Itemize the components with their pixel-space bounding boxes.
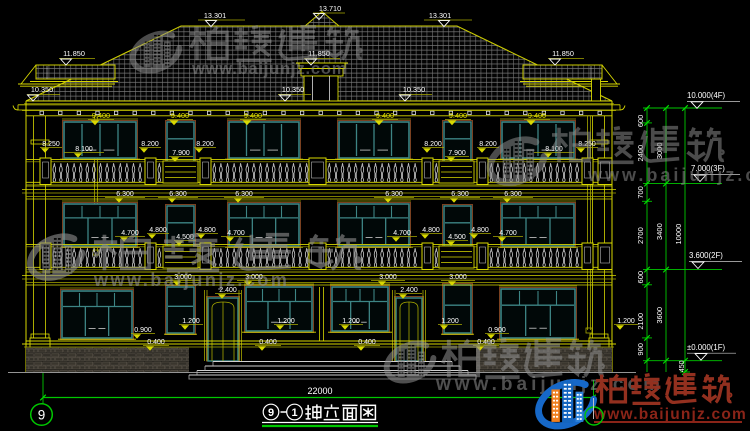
svg-text:0.400: 0.400 bbox=[259, 339, 277, 346]
svg-text:8.250: 8.250 bbox=[42, 141, 60, 148]
svg-text:9.400: 9.400 bbox=[171, 111, 189, 120]
svg-text:4.800: 4.800 bbox=[198, 227, 216, 234]
svg-text:3.000: 3.000 bbox=[379, 274, 397, 281]
svg-text:0.400: 0.400 bbox=[147, 339, 165, 346]
svg-text:6.300: 6.300 bbox=[235, 191, 253, 198]
svg-text:1.200: 1.200 bbox=[182, 318, 200, 325]
svg-text:6.300: 6.300 bbox=[116, 191, 134, 198]
svg-text:8.200: 8.200 bbox=[196, 141, 214, 148]
svg-text:3600: 3600 bbox=[655, 307, 664, 324]
svg-text:www.baijunjz.com: www.baijunjz.com bbox=[191, 60, 347, 78]
svg-text:9.400: 9.400 bbox=[528, 111, 546, 120]
svg-text:9.400: 9.400 bbox=[244, 111, 262, 120]
svg-text:1.200: 1.200 bbox=[617, 318, 635, 325]
svg-text:9.400: 9.400 bbox=[449, 111, 467, 120]
svg-text:700: 700 bbox=[636, 186, 645, 199]
svg-text:8.200: 8.200 bbox=[141, 141, 159, 148]
svg-text:10.350: 10.350 bbox=[282, 85, 304, 94]
svg-text:4.500: 4.500 bbox=[448, 234, 466, 241]
svg-text:9.400: 9.400 bbox=[376, 111, 394, 120]
svg-text:450: 450 bbox=[679, 360, 686, 372]
svg-text:2.400: 2.400 bbox=[400, 287, 418, 294]
svg-text:4.700: 4.700 bbox=[121, 230, 139, 237]
svg-text:22000: 22000 bbox=[307, 386, 332, 396]
svg-text:8.200: 8.200 bbox=[479, 141, 497, 148]
svg-text:9: 9 bbox=[268, 407, 274, 419]
svg-text:9.400: 9.400 bbox=[92, 111, 110, 120]
svg-text:6.300: 6.300 bbox=[451, 191, 469, 198]
svg-text:7.900: 7.900 bbox=[448, 150, 466, 157]
svg-text:4.700: 4.700 bbox=[499, 230, 517, 237]
svg-text:10.000(4F): 10.000(4F) bbox=[687, 91, 726, 100]
svg-text:11.850: 11.850 bbox=[552, 49, 574, 58]
svg-text:4.800: 4.800 bbox=[471, 227, 489, 234]
svg-text:1.200: 1.200 bbox=[441, 318, 459, 325]
svg-text:4.800: 4.800 bbox=[422, 227, 440, 234]
svg-text:13.301: 13.301 bbox=[429, 11, 451, 20]
svg-text:3400: 3400 bbox=[655, 223, 664, 240]
svg-text:www.baijunjz.com: www.baijunjz.com bbox=[587, 165, 750, 185]
svg-text:7.900: 7.900 bbox=[172, 150, 190, 157]
svg-text:6.300: 6.300 bbox=[385, 191, 403, 198]
svg-text:6.300: 6.300 bbox=[169, 191, 187, 198]
svg-text:13.710: 13.710 bbox=[319, 4, 341, 13]
svg-text:8.100: 8.100 bbox=[75, 146, 93, 153]
svg-text:1.200: 1.200 bbox=[277, 318, 295, 325]
svg-text:0.900: 0.900 bbox=[134, 327, 152, 334]
svg-text:6.300: 6.300 bbox=[504, 191, 522, 198]
svg-text:±0.000(1F): ±0.000(1F) bbox=[687, 343, 725, 352]
svg-text:1.200: 1.200 bbox=[342, 318, 360, 325]
svg-text:1: 1 bbox=[291, 407, 297, 419]
svg-text:www.baijunjz.com: www.baijunjz.com bbox=[593, 406, 747, 423]
svg-text:8.200: 8.200 bbox=[424, 141, 442, 148]
svg-text:2100: 2100 bbox=[636, 313, 645, 330]
svg-text:www.baijunjz.com: www.baijunjz.com bbox=[93, 270, 289, 290]
svg-text:900: 900 bbox=[636, 343, 645, 356]
svg-text:4.800: 4.800 bbox=[149, 227, 167, 234]
svg-text:600: 600 bbox=[636, 271, 645, 284]
svg-text:3.000: 3.000 bbox=[449, 274, 467, 281]
svg-text:600: 600 bbox=[636, 115, 645, 128]
svg-text:0.400: 0.400 bbox=[358, 339, 376, 346]
svg-text:0.900: 0.900 bbox=[488, 327, 506, 334]
svg-text:9: 9 bbox=[38, 408, 46, 423]
svg-text:10000: 10000 bbox=[674, 224, 683, 245]
svg-text:2700: 2700 bbox=[636, 227, 645, 244]
svg-text:4.700: 4.700 bbox=[227, 230, 245, 237]
svg-text:4.700: 4.700 bbox=[393, 230, 411, 237]
svg-text:10.350: 10.350 bbox=[31, 85, 53, 94]
svg-text:10.350: 10.350 bbox=[403, 85, 425, 94]
svg-text:13.301: 13.301 bbox=[204, 11, 226, 20]
svg-text:11.850: 11.850 bbox=[63, 49, 85, 58]
svg-text:3.600(2F): 3.600(2F) bbox=[689, 251, 723, 260]
